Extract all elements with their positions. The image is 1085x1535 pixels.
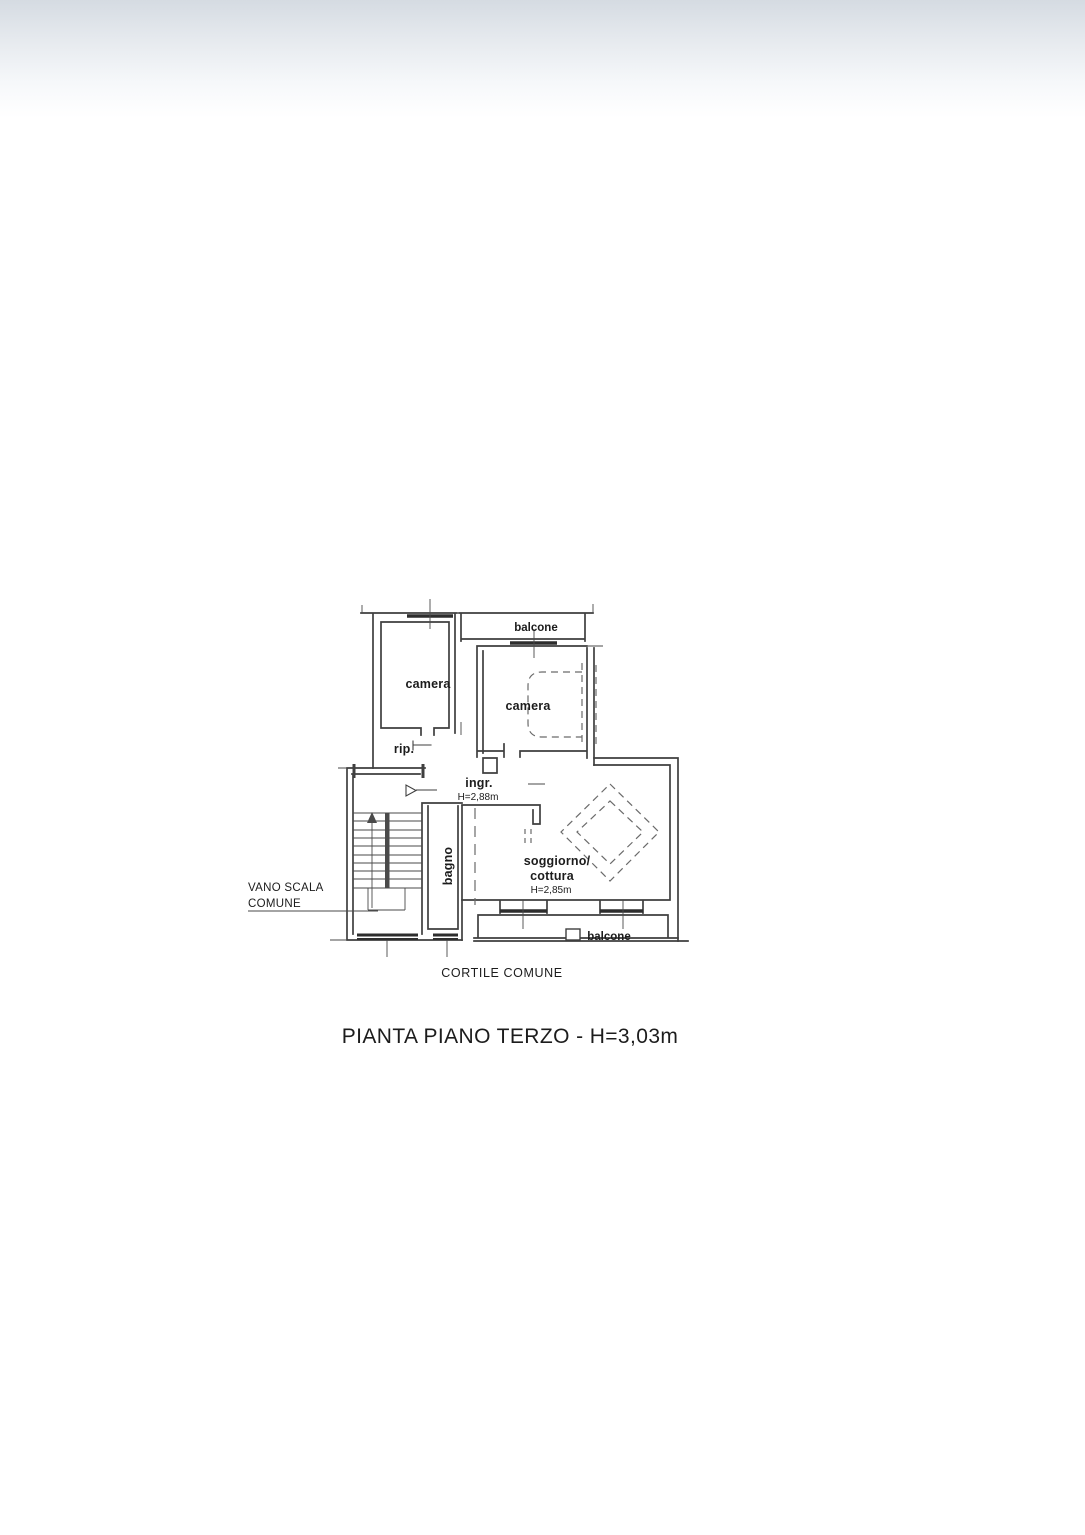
balcone-pillar	[566, 929, 580, 940]
stair-central-rail	[385, 813, 390, 888]
centerline-ticks	[248, 599, 623, 957]
label-bagno: bagno	[441, 847, 455, 886]
windows	[357, 616, 643, 939]
label-camera-2: camera	[506, 699, 552, 713]
label-camera-1: camera	[406, 677, 452, 691]
label-balcone-bottom: balcone	[587, 931, 630, 943]
scanned-floor-plan-page: balcone camera camera rip. ingr. H=2,88m…	[0, 0, 1085, 1535]
door-triangle-icon	[406, 785, 416, 796]
label-rip: rip.	[394, 742, 414, 756]
label-ingr-height: H=2,88m	[458, 792, 499, 803]
label-soggiorno-height: H=2,85m	[531, 885, 572, 896]
label-cortile-comune: CORTILE COMUNE	[441, 966, 562, 980]
label-balcone-top: balcone	[514, 622, 557, 634]
label-vano-scala-1: VANO SCALA	[248, 882, 324, 894]
stair-landing-outline	[368, 888, 405, 910]
room-labels: balcone camera camera rip. ingr. H=2,88m…	[394, 622, 631, 943]
floor-plan-drawing: balcone camera camera rip. ingr. H=2,88m…	[0, 0, 1085, 1535]
staircase	[353, 812, 422, 910]
plan-title: PIANTA PIANO TERZO - H=3,03m	[342, 1025, 679, 1048]
label-ingr: ingr.	[465, 776, 492, 790]
label-vano-scala-2: COMUNE	[248, 898, 301, 910]
entry-door-marker	[406, 785, 437, 796]
wall-end-caps	[354, 764, 423, 778]
label-soggiorno-2: cottura	[530, 869, 575, 883]
walls	[347, 613, 688, 941]
label-soggiorno-1: soggiorno/	[524, 854, 591, 868]
stair-up-arrow-icon	[367, 812, 377, 823]
